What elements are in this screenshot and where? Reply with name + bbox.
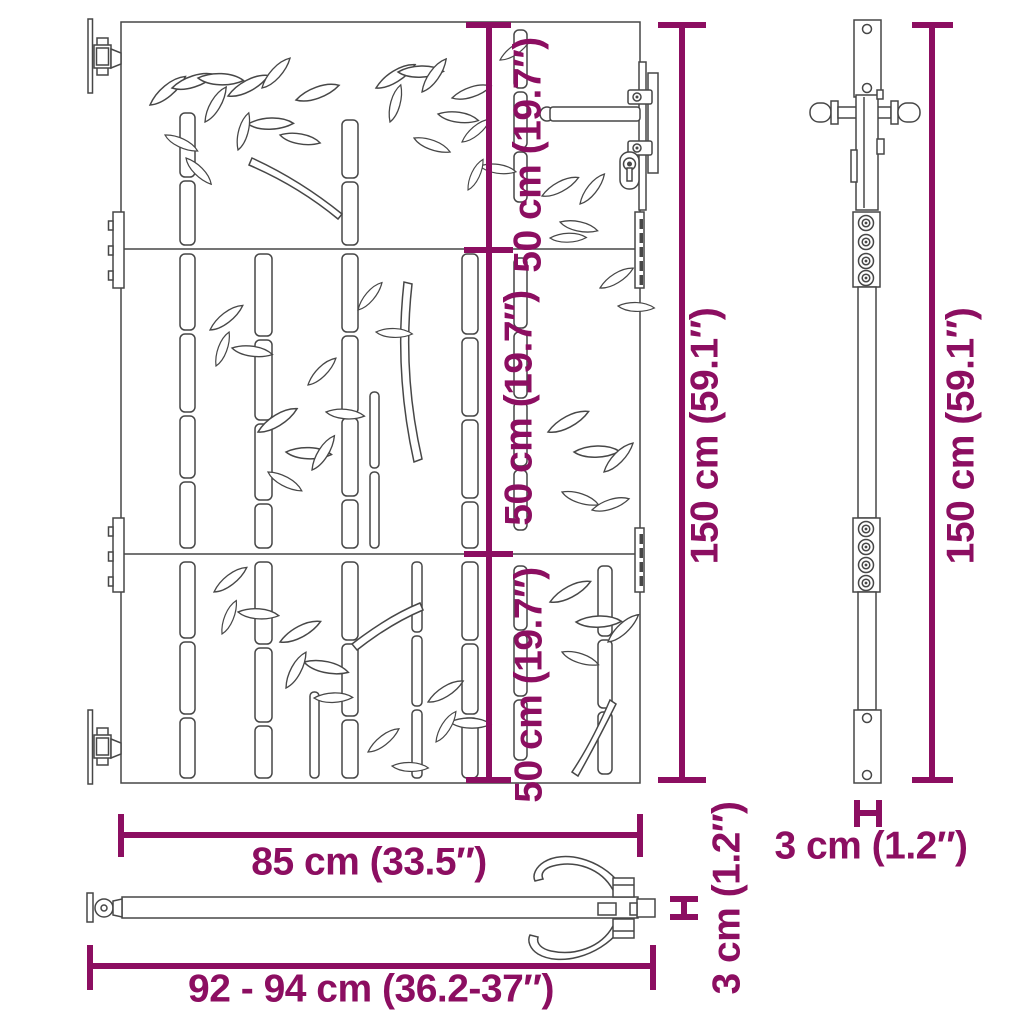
hinge-pin-top-view (87, 893, 122, 922)
label-gate-width: 85 cm (33.5″) (251, 843, 486, 882)
latch-plate-right-lower (635, 528, 644, 592)
hinge-plate-left-middle (109, 518, 125, 592)
keyhole-icon (620, 152, 639, 189)
label-segment-middle: 50 cm (19.7″) (500, 290, 539, 525)
label-side-height: 150 cm (59.1″) (942, 308, 981, 565)
hinge-top-icon (88, 19, 121, 93)
dimension-diagram: 50 cm (19.7″) 50 cm (19.7″) 50 cm (19.7″… (0, 0, 1024, 1024)
bolt-plate-upper (853, 212, 880, 287)
hinge-plate-left-upper (109, 212, 125, 288)
label-side-thickness: 3 cm (1.2″) (774, 827, 967, 866)
label-segment-bottom: 50 cm (19.7″) (510, 567, 549, 802)
bolt-plate-middle (853, 518, 880, 592)
dim-marker-plan-thickness (670, 899, 698, 917)
label-front-height: 150 cm (59.1″) (686, 308, 725, 565)
dim-marker-side-thickness (857, 800, 879, 827)
hinge-bottom-icon (88, 710, 121, 784)
label-segment-top: 50 cm (19.7″) (509, 37, 548, 272)
gate-side-view (810, 20, 920, 783)
label-total-width: 92 - 94 cm (36.2-37″) (188, 970, 554, 1009)
label-plan-thickness: 3 cm (1.2″) (708, 801, 747, 994)
gate-front-view (88, 19, 658, 784)
latch-plate-right-upper (635, 212, 644, 288)
